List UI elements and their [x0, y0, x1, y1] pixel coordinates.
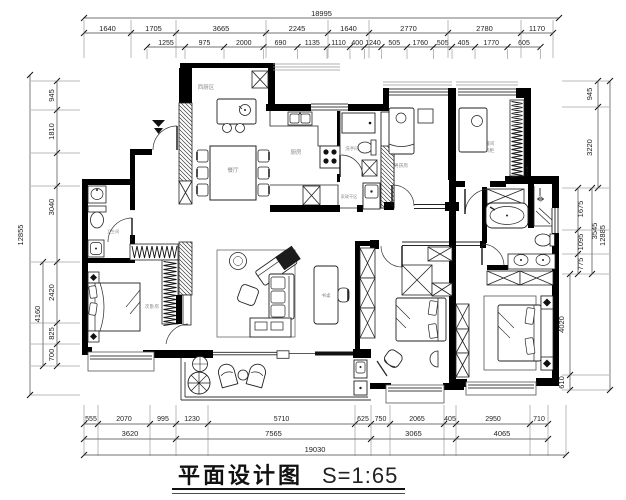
- svg-text:2420: 2420: [47, 284, 56, 301]
- svg-text:3065: 3065: [405, 429, 422, 438]
- svg-text:1170: 1170: [529, 24, 545, 33]
- svg-text:995: 995: [157, 416, 169, 423]
- svg-text:1095: 1095: [576, 234, 585, 251]
- svg-text:1255: 1255: [158, 40, 174, 47]
- svg-text:825: 825: [47, 327, 56, 340]
- svg-text:750: 750: [375, 416, 387, 423]
- svg-text:4065: 4065: [494, 429, 511, 438]
- svg-text:1640: 1640: [340, 24, 357, 33]
- svg-text:3220: 3220: [585, 139, 594, 156]
- svg-text:4160: 4160: [33, 306, 42, 323]
- svg-text:19030: 19030: [305, 445, 326, 454]
- svg-text:3040: 3040: [47, 199, 56, 216]
- svg-text:1640: 1640: [99, 24, 116, 33]
- svg-text:5710: 5710: [274, 416, 290, 423]
- svg-text:505: 505: [437, 40, 449, 47]
- svg-text:书桌: 书桌: [322, 292, 331, 299]
- svg-text:男孩房: 男孩房: [394, 162, 409, 169]
- svg-text:2070: 2070: [116, 416, 132, 423]
- svg-text:3620: 3620: [122, 429, 139, 438]
- svg-text:625: 625: [357, 416, 369, 423]
- svg-text:S=1:65: S=1:65: [322, 463, 398, 488]
- svg-text:厨房: 厨房: [290, 148, 302, 156]
- svg-text:700: 700: [47, 349, 56, 362]
- svg-text:1705: 1705: [145, 24, 162, 33]
- svg-text:400: 400: [351, 40, 363, 47]
- svg-text:405: 405: [444, 416, 456, 423]
- svg-text:1760: 1760: [412, 40, 428, 47]
- svg-text:2065: 2065: [409, 416, 425, 423]
- svg-text:1135: 1135: [305, 40, 320, 47]
- svg-text:1110: 1110: [331, 40, 346, 47]
- svg-text:次卧房: 次卧房: [145, 303, 160, 310]
- svg-text:690: 690: [275, 40, 287, 47]
- svg-text:505: 505: [388, 40, 400, 47]
- svg-text:405: 405: [458, 40, 470, 47]
- svg-text:12855: 12855: [16, 225, 25, 246]
- svg-text:3665: 3665: [213, 24, 230, 33]
- svg-text:卫生间: 卫生间: [107, 228, 120, 235]
- svg-text:555: 555: [85, 416, 97, 423]
- svg-text:605: 605: [518, 40, 530, 47]
- svg-text:2245: 2245: [289, 24, 306, 33]
- svg-text:975: 975: [199, 40, 211, 47]
- svg-text:2770: 2770: [400, 24, 417, 33]
- svg-text:2000: 2000: [236, 40, 252, 47]
- svg-text:2950: 2950: [485, 416, 501, 423]
- svg-text:平面设计图: 平面设计图: [178, 463, 303, 488]
- svg-text:餐厅: 餐厅: [227, 166, 239, 174]
- svg-text:西厨区: 西厨区: [198, 84, 215, 91]
- svg-text:775: 775: [576, 258, 585, 271]
- svg-text:1810: 1810: [47, 123, 56, 140]
- svg-text:710: 710: [533, 416, 545, 423]
- svg-text:家政干区: 家政干区: [341, 193, 358, 200]
- svg-text:洗手间: 洗手间: [345, 145, 359, 152]
- svg-text:18995: 18995: [311, 9, 332, 18]
- svg-text:1240: 1240: [365, 40, 381, 47]
- svg-text:945: 945: [585, 88, 594, 101]
- svg-text:2780: 2780: [476, 24, 493, 33]
- svg-text:7565: 7565: [265, 429, 282, 438]
- svg-text:12885: 12885: [598, 225, 607, 246]
- svg-text:1675: 1675: [576, 201, 585, 218]
- svg-text:945: 945: [47, 89, 56, 102]
- svg-text:1230: 1230: [184, 416, 200, 423]
- svg-text:1770: 1770: [483, 40, 499, 47]
